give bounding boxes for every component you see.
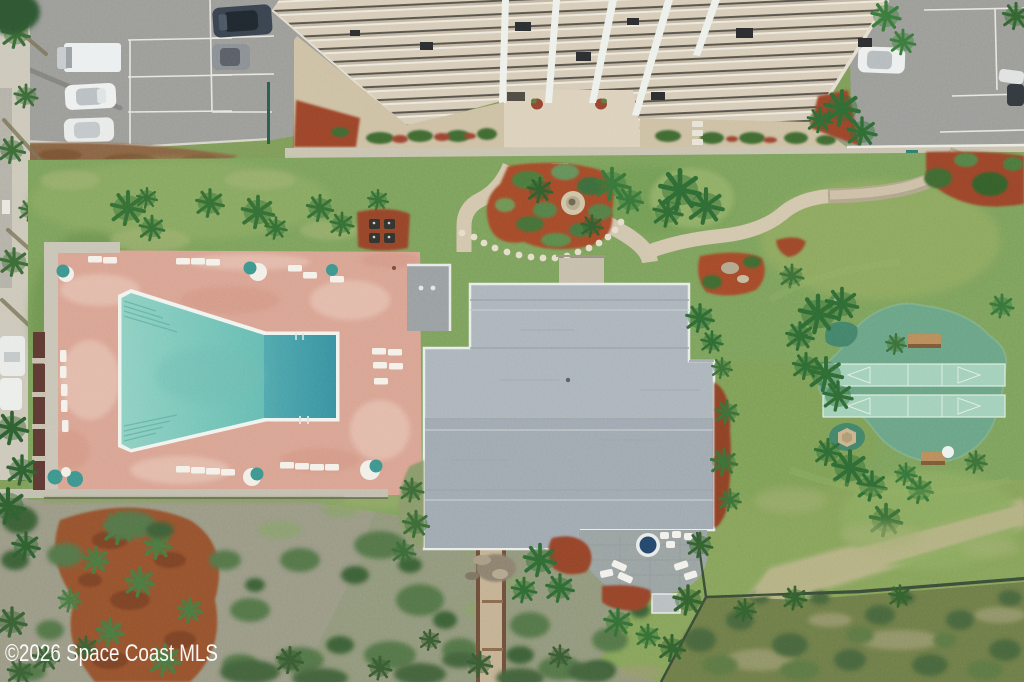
svg-text:©2026 Space Coast MLS: ©2026 Space Coast MLS xyxy=(5,640,218,667)
